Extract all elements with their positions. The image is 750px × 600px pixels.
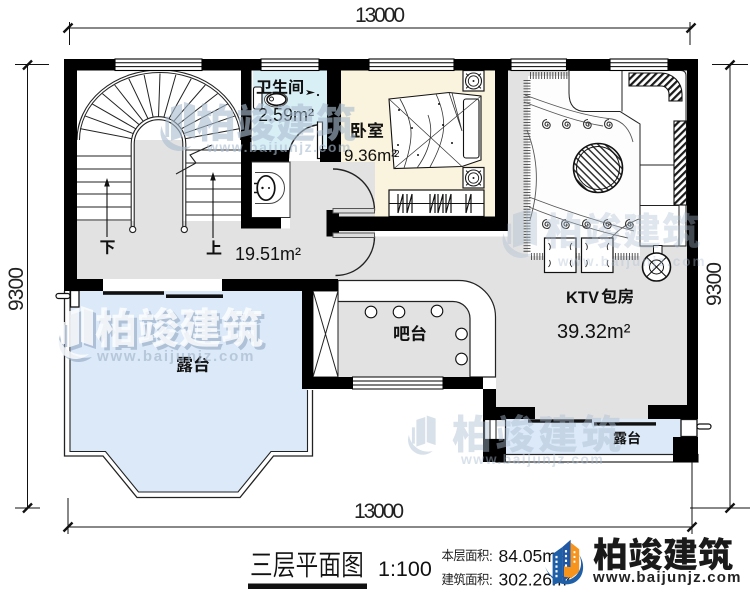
svg-text:www.baijunjz.com: www.baijunjz.com — [592, 569, 742, 586]
svg-text::: : — [489, 573, 493, 588]
svg-text:13000: 13000 — [355, 4, 405, 27]
svg-text:9.36m²: 9.36m² — [344, 146, 397, 165]
svg-text:KTV: KTV — [566, 289, 599, 307]
svg-text::: : — [489, 549, 493, 564]
svg-text:19.51m²: 19.51m² — [235, 244, 301, 264]
svg-text:www.baijunjz.com: www.baijunjz.com — [96, 348, 255, 365]
svg-text:13000: 13000 — [354, 500, 404, 523]
svg-text:39.32m²: 39.32m² — [557, 321, 631, 343]
svg-text:1:100: 1:100 — [378, 557, 432, 581]
svg-text:www.baijunjz.com: www.baijunjz.com — [206, 139, 352, 155]
svg-text:www.baijunjz.com: www.baijunjz.com — [557, 254, 707, 269]
svg-text:9300: 9300 — [5, 267, 28, 311]
svg-text:www.baijunjz.com: www.baijunjz.com — [460, 451, 604, 467]
